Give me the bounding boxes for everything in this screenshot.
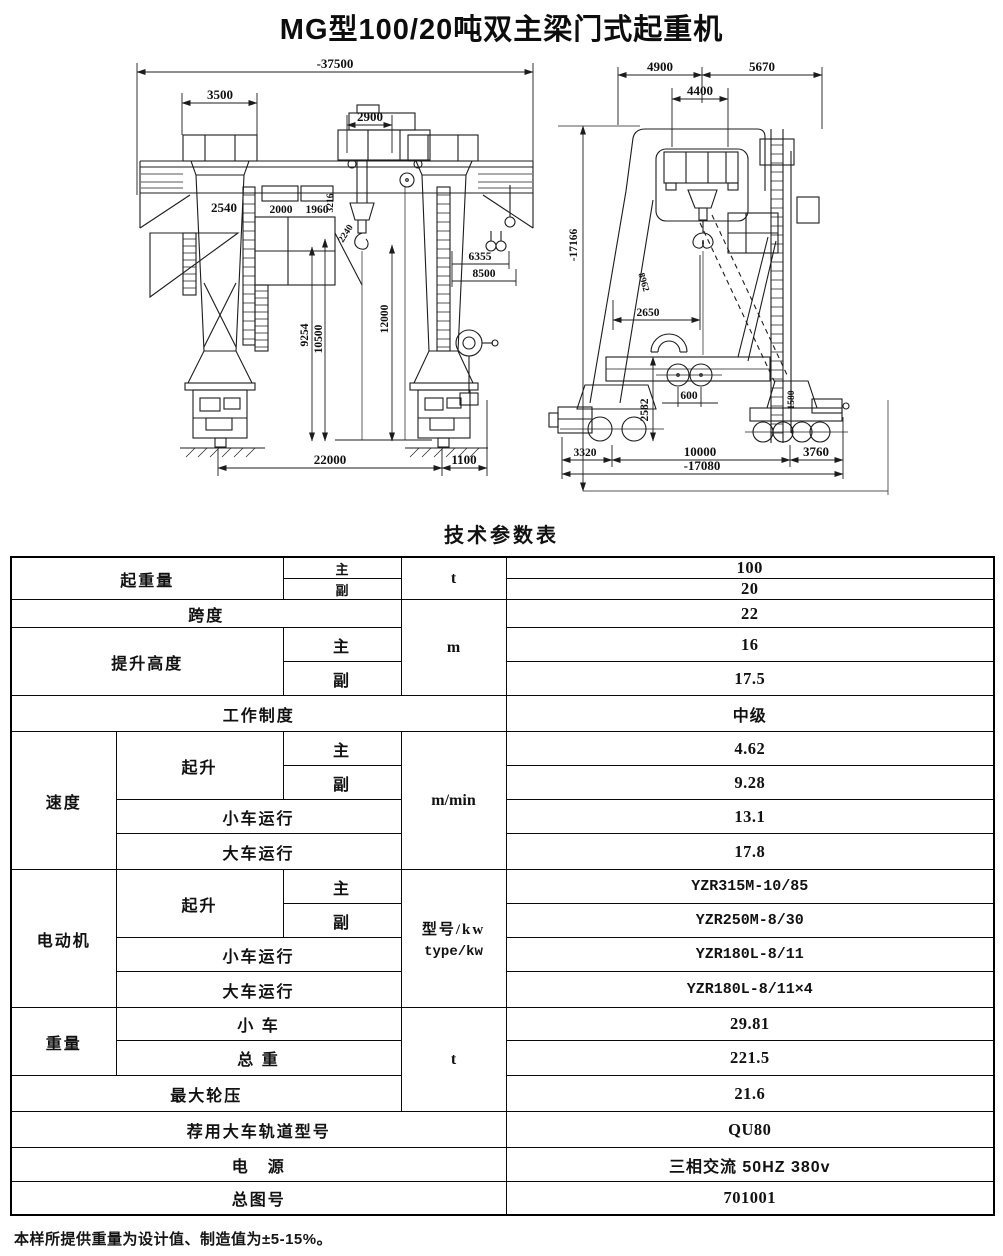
footnote: 本样所提供重量为设计值、制造值为±5-15%。 (14, 1228, 332, 1249)
lifting-height-aux-label: 副 (283, 662, 401, 696)
speed-hoist-main-value: 4.62 (506, 732, 994, 766)
motor-unit-en: type/kw (402, 944, 506, 960)
drawing-no-value: 701001 (506, 1182, 994, 1215)
motor-hoist-main-label: 主 (283, 870, 401, 904)
dim-600: 600 (680, 390, 698, 402)
side-view-structure (549, 129, 849, 443)
speed-gantry-label: 大车运行 (116, 834, 401, 870)
weight-total-value: 221.5 (506, 1041, 994, 1076)
motor-label: 电动机 (11, 870, 116, 1008)
drawing-no-label: 总图号 (11, 1182, 506, 1215)
dim-8500: 8500 (473, 268, 496, 280)
speed-hoist-aux-label: 副 (283, 766, 401, 800)
lifting-capacity-main-value: 100 (506, 557, 994, 579)
duty-class-value: 中级 (506, 696, 994, 732)
speed-label: 速度 (11, 732, 116, 870)
dim-overall-height: -17166 (568, 228, 580, 261)
weight-total-label: 总 重 (116, 1041, 401, 1076)
dim-cap-width: 3500 (207, 87, 233, 102)
dim-9254: 9254 (299, 323, 311, 346)
span-label: 跨度 (11, 600, 401, 628)
dim-3760: 3760 (803, 444, 829, 459)
lifting-height-label: 提升高度 (11, 628, 283, 696)
lifting-capacity-aux-value: 20 (506, 579, 994, 600)
lifting-capacity-aux-label: 副 (283, 579, 401, 600)
duty-class-label: 工作制度 (11, 696, 506, 732)
dim-overall-length: -17080 (684, 458, 721, 473)
dim-8962: 8962 (635, 272, 650, 293)
table-title: 技术参数表 (0, 519, 1003, 548)
max-wheel-load-label: 最大轮压 (11, 1076, 401, 1112)
weight-trolley-value: 29.81 (506, 1008, 994, 1041)
lifting-height-main-label: 主 (283, 628, 401, 662)
speed-gantry-value: 17.8 (506, 834, 994, 870)
page-title: MG型100/20吨双主梁门式起重机 (0, 6, 1003, 48)
motor-hoist-main-value: YZR315M-10/85 (506, 870, 994, 904)
dim-hoist-main: 2000 (270, 204, 293, 216)
motor-gantry-label: 大车运行 (116, 972, 401, 1008)
speed-hoist-main-label: 主 (283, 732, 401, 766)
dim-6355: 6355 (469, 251, 492, 263)
dim-2240: 2240 (337, 223, 356, 245)
weight-unit: t (401, 1008, 506, 1112)
dim-5670: 5670 (749, 59, 775, 74)
height-span-unit: m (401, 600, 506, 696)
span-value: 22 (506, 600, 994, 628)
weight-trolley-label: 小 车 (116, 1008, 401, 1041)
motor-hoist-aux-label: 副 (283, 904, 401, 938)
rail-type-value: QU80 (506, 1112, 994, 1148)
dim-1580: 1580 (787, 390, 797, 409)
technical-drawings: -37500 3500 2900 2540 2000 1960 3216 224… (0, 55, 1003, 510)
power-supply-label: 电 源 (11, 1148, 506, 1182)
dim-4400: 4400 (687, 83, 713, 98)
lifting-height-main-value: 16 (506, 628, 994, 662)
motor-hoist-label: 起升 (116, 870, 283, 938)
dim-trolley-gauge: 2900 (357, 109, 383, 124)
max-wheel-load-value: 21.6 (506, 1076, 994, 1112)
lifting-capacity-main-label: 主 (283, 557, 401, 579)
dim-1100: 1100 (451, 452, 476, 467)
speed-trolley-value: 13.1 (506, 800, 994, 834)
motor-trolley-value: YZR180L-8/11 (506, 938, 994, 972)
motor-trolley-label: 小车运行 (116, 938, 401, 972)
dim-2582: 2582 (639, 398, 651, 421)
motor-hoist-aux-value: YZR250M-8/30 (506, 904, 994, 938)
dim-overall-width: -37500 (317, 56, 354, 71)
rail-type-label: 荐用大车轨道型号 (11, 1112, 506, 1148)
motor-gantry-value: YZR180L-8/11×4 (506, 972, 994, 1008)
dim-leg-top-width: 2540 (211, 200, 237, 215)
motor-unit-cn: 型号/kw (402, 918, 506, 939)
datasheet-page: { "page": { "title": "MG型100/20吨双主梁门式起重机… (0, 0, 1003, 1256)
motor-unit: 型号/kw type/kw (401, 870, 506, 1008)
lifting-height-aux-value: 17.5 (506, 662, 994, 696)
spec-table: 起重量 主 t 100 副 20 跨度 m 22 提升高度 主 16 副 17.… (10, 556, 995, 1216)
dim-wheel-base: 10000 (684, 444, 717, 459)
side-view-dimensions: 4900 5670 4400 -17166 8962 2650 2582 600… (558, 59, 888, 495)
dim-3216: 3216 (326, 193, 336, 212)
lifting-capacity-label: 起重量 (11, 557, 283, 600)
speed-unit: m/min (401, 732, 506, 870)
dim-12000: 12000 (379, 304, 391, 333)
speed-hoist-label: 起升 (116, 732, 283, 800)
power-supply-value: 三相交流 50HZ 380v (506, 1148, 994, 1182)
dim-3320: 3320 (574, 447, 597, 459)
dim-10500: 10500 (313, 324, 325, 353)
lifting-capacity-unit: t (401, 557, 506, 600)
speed-hoist-aux-value: 9.28 (506, 766, 994, 800)
dim-2650: 2650 (637, 307, 660, 319)
dim-4900: 4900 (647, 59, 673, 74)
speed-trolley-label: 小车运行 (116, 800, 401, 834)
weight-label: 重量 (11, 1008, 116, 1076)
dim-span: 22000 (314, 452, 347, 467)
